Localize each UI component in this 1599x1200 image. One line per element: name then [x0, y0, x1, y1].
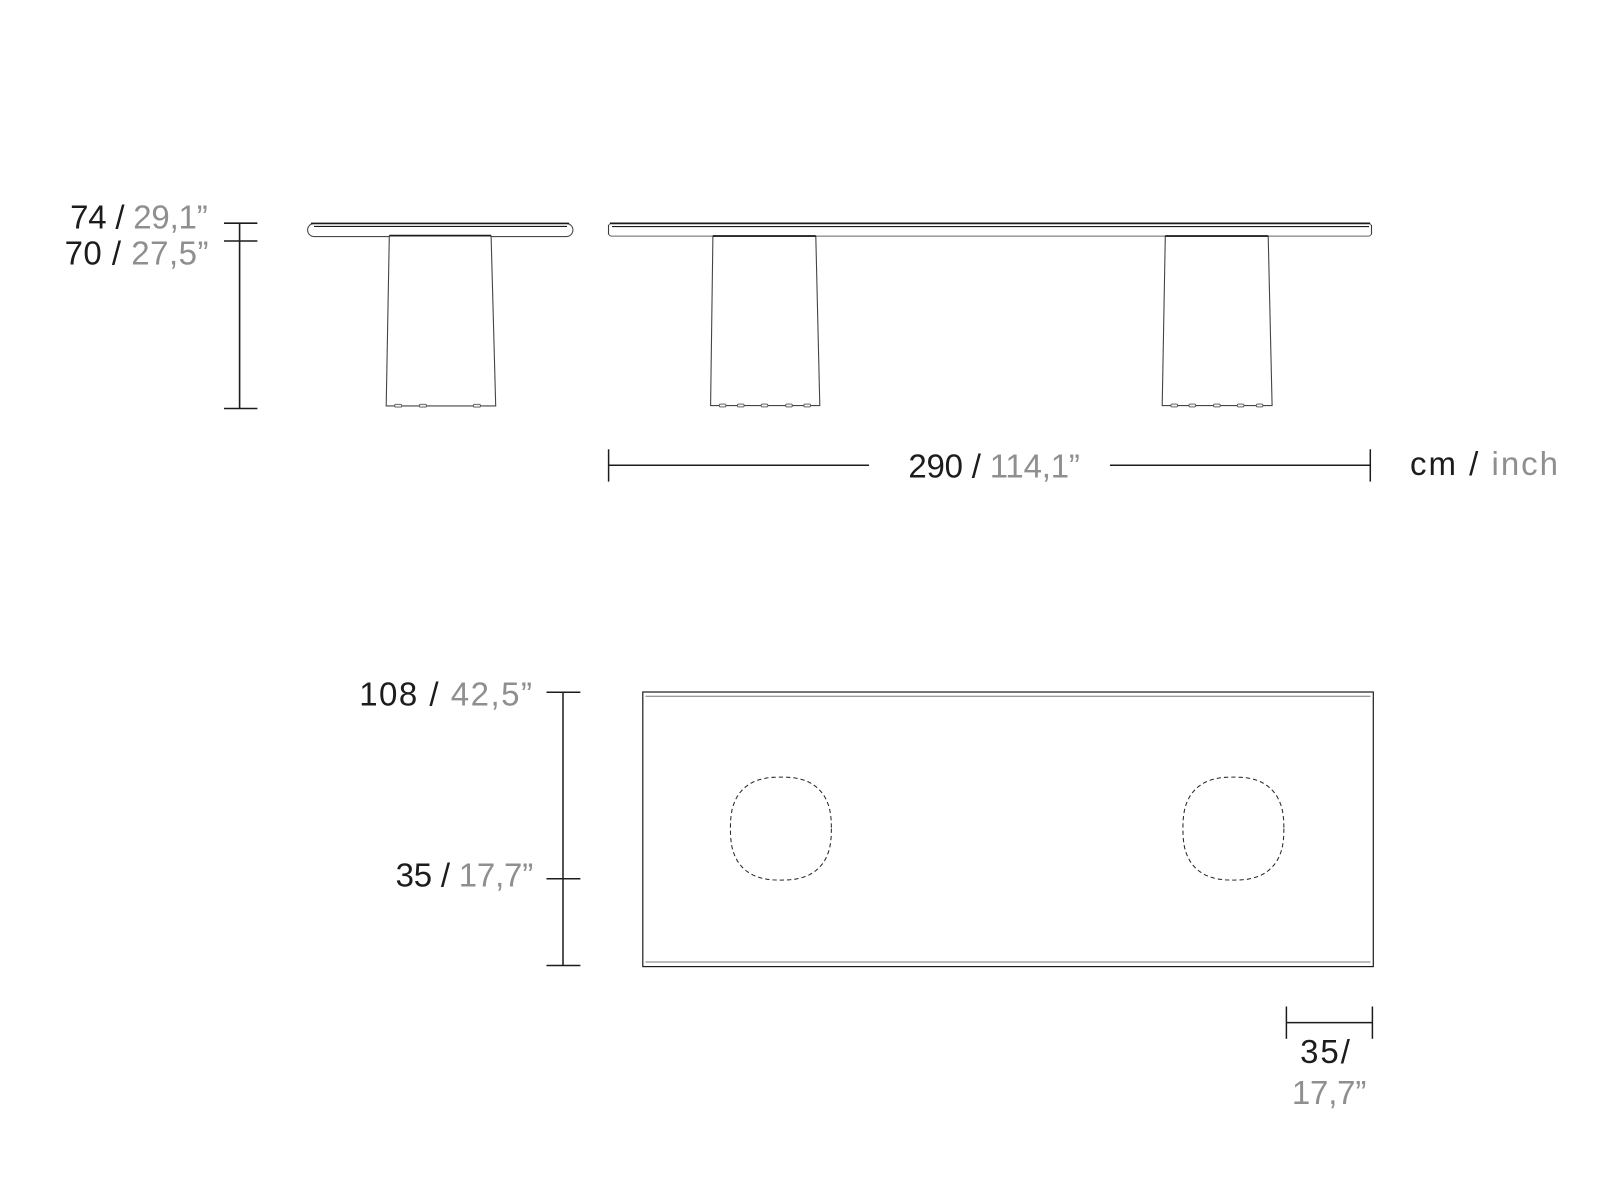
svg-text:17,7”: 17,7”: [1292, 1074, 1366, 1111]
svg-text:35 / 17,7”: 35 / 17,7”: [396, 857, 533, 894]
svg-text:35/: 35/: [1300, 1033, 1352, 1070]
svg-text:290 / 114,1”: 290 / 114,1”: [908, 447, 1079, 484]
svg-text:108 / 42,5”: 108 / 42,5”: [359, 675, 533, 712]
svg-text:70 / 27,5”: 70 / 27,5”: [65, 235, 209, 272]
svg-text:74 / 29,1”: 74 / 29,1”: [70, 199, 207, 236]
svg-text:cm / inch: cm / inch: [1410, 445, 1560, 482]
